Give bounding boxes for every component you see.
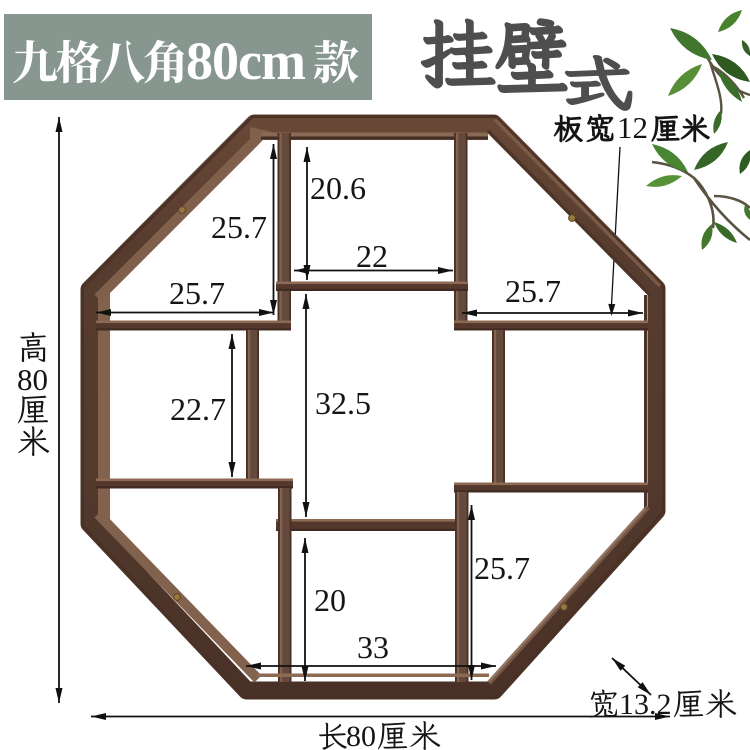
svg-text:32.5: 32.5 xyxy=(315,385,371,421)
svg-text:12: 12 xyxy=(617,110,648,145)
svg-text:20: 20 xyxy=(314,582,346,618)
svg-text:22.7: 22.7 xyxy=(170,391,226,427)
svg-text:33: 33 xyxy=(357,629,389,665)
svg-text:25.7: 25.7 xyxy=(474,550,530,586)
svg-text:80cm: 80cm xyxy=(186,31,306,91)
svg-text:80: 80 xyxy=(346,720,376,750)
svg-text:20.6: 20.6 xyxy=(310,170,366,206)
svg-text:25.7: 25.7 xyxy=(505,273,561,309)
svg-text:25.7: 25.7 xyxy=(169,275,225,311)
svg-text:80: 80 xyxy=(17,362,48,397)
svg-text:13.2: 13.2 xyxy=(619,688,672,721)
svg-text:22: 22 xyxy=(356,238,388,274)
svg-text:25.7: 25.7 xyxy=(211,209,267,245)
